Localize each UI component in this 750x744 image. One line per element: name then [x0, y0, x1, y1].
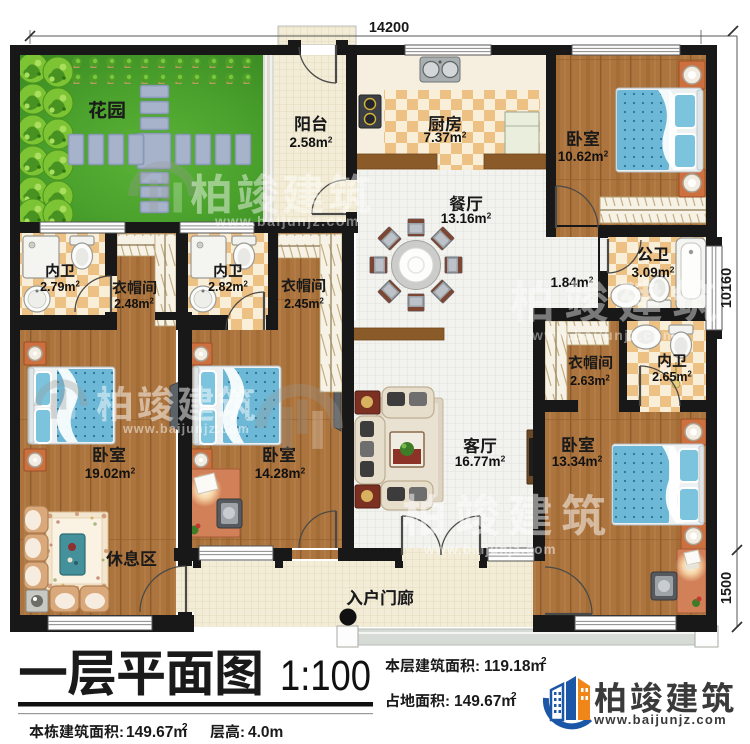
svg-text:7.37m2: 7.37m2 — [424, 129, 467, 145]
svg-text:19.02m2: 19.02m2 — [85, 465, 136, 481]
svg-text:2.63m2: 2.63m2 — [570, 374, 610, 388]
svg-text:www.baijunjz.com: www.baijunjz.com — [214, 213, 360, 229]
svg-text:149.67m: 149.67m — [126, 724, 187, 741]
svg-text:1:100: 1:100 — [280, 652, 371, 700]
svg-text::: : — [240, 724, 245, 741]
svg-text::: : — [475, 658, 480, 675]
svg-text:www.baijunjz.com: www.baijunjz.com — [423, 542, 557, 557]
svg-text:2.82m2: 2.82m2 — [208, 280, 248, 294]
svg-text:2: 2 — [182, 722, 188, 733]
svg-text:2.58m2: 2.58m2 — [290, 134, 333, 150]
svg-text:14200: 14200 — [369, 20, 409, 36]
svg-text::: : — [445, 693, 450, 710]
svg-text::: : — [119, 724, 124, 741]
svg-text:2.65m2: 2.65m2 — [652, 370, 692, 384]
svg-text:2: 2 — [541, 656, 547, 667]
svg-text:2.45m2: 2.45m2 — [284, 297, 324, 311]
svg-text:1500: 1500 — [719, 572, 735, 604]
svg-text:2.48m2: 2.48m2 — [114, 297, 154, 311]
svg-text:13.16m2: 13.16m2 — [441, 210, 492, 226]
svg-text:4.0m: 4.0m — [248, 724, 283, 741]
svg-text:www.baijunjz.com: www.baijunjz.com — [122, 422, 250, 436]
svg-text:16.77m2: 16.77m2 — [455, 453, 506, 469]
svg-text:2: 2 — [511, 691, 517, 702]
svg-text:2.79m2: 2.79m2 — [40, 280, 80, 294]
svg-text:www.baijunjz.com: www.baijunjz.com — [531, 327, 677, 343]
svg-text:3.09m2: 3.09m2 — [632, 264, 675, 280]
svg-text:13.34m2: 13.34m2 — [552, 453, 603, 469]
svg-text:10.62m2: 10.62m2 — [558, 148, 609, 164]
svg-text:www.baijunjz.com: www.baijunjz.com — [593, 712, 727, 727]
svg-text:119.18m: 119.18m — [484, 658, 544, 675]
svg-text:149.67m: 149.67m — [454, 693, 515, 710]
svg-text:14.28m2: 14.28m2 — [255, 465, 306, 481]
svg-text:10160: 10160 — [719, 268, 735, 308]
